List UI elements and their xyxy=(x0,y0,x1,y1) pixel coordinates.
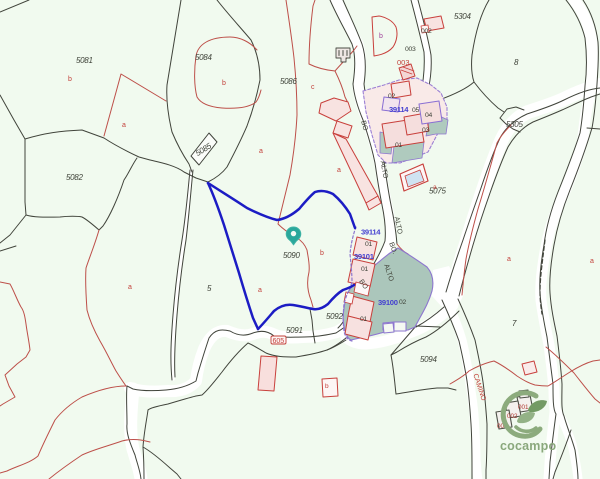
svg-text:001: 001 xyxy=(518,404,529,411)
svg-text:01: 01 xyxy=(360,316,367,323)
svg-text:a: a xyxy=(258,287,262,294)
svg-text:03: 03 xyxy=(422,127,429,134)
svg-text:a: a xyxy=(259,148,263,155)
svg-text:003: 003 xyxy=(397,58,410,67)
svg-text:a: a xyxy=(337,167,341,174)
svg-text:5304: 5304 xyxy=(454,12,471,21)
svg-text:b: b xyxy=(325,383,329,390)
svg-text:a: a xyxy=(590,258,594,265)
svg-text:605: 605 xyxy=(273,338,285,345)
svg-text:5084: 5084 xyxy=(195,53,212,62)
svg-text:003: 003 xyxy=(405,46,416,53)
svg-text:002: 002 xyxy=(421,28,432,35)
svg-text:c: c xyxy=(311,84,315,91)
svg-text:b: b xyxy=(68,76,72,83)
svg-text:5075: 5075 xyxy=(429,187,446,196)
svg-text:5092: 5092 xyxy=(326,312,343,321)
svg-text:5305: 5305 xyxy=(506,120,523,129)
svg-text:39114: 39114 xyxy=(389,105,409,114)
svg-text:02: 02 xyxy=(388,93,395,100)
svg-text:01: 01 xyxy=(365,241,372,248)
svg-text:39100: 39100 xyxy=(378,298,398,307)
svg-text:39101: 39101 xyxy=(354,252,375,261)
svg-text:39114: 39114 xyxy=(361,228,381,237)
svg-text:01: 01 xyxy=(395,142,402,149)
svg-text:a: a xyxy=(128,284,132,291)
svg-text:a: a xyxy=(122,122,126,129)
svg-text:5081: 5081 xyxy=(76,56,93,65)
svg-text:b: b xyxy=(379,33,383,40)
svg-text:b: b xyxy=(320,250,324,257)
svg-text:02: 02 xyxy=(399,299,406,306)
svg-text:5090: 5090 xyxy=(283,251,300,260)
svg-text:5094: 5094 xyxy=(420,355,437,364)
svg-text:b: b xyxy=(222,80,226,87)
svg-text:01: 01 xyxy=(361,266,368,273)
svg-text:002: 002 xyxy=(507,413,518,420)
svg-text:a: a xyxy=(433,184,437,191)
svg-text:cocampo: cocampo xyxy=(500,439,556,453)
svg-text:5082: 5082 xyxy=(66,173,83,182)
svg-text:5086: 5086 xyxy=(280,77,297,86)
svg-text:05: 05 xyxy=(412,107,419,114)
svg-text:04: 04 xyxy=(425,112,432,119)
svg-text:5091: 5091 xyxy=(286,326,303,335)
svg-text:a: a xyxy=(507,256,511,263)
